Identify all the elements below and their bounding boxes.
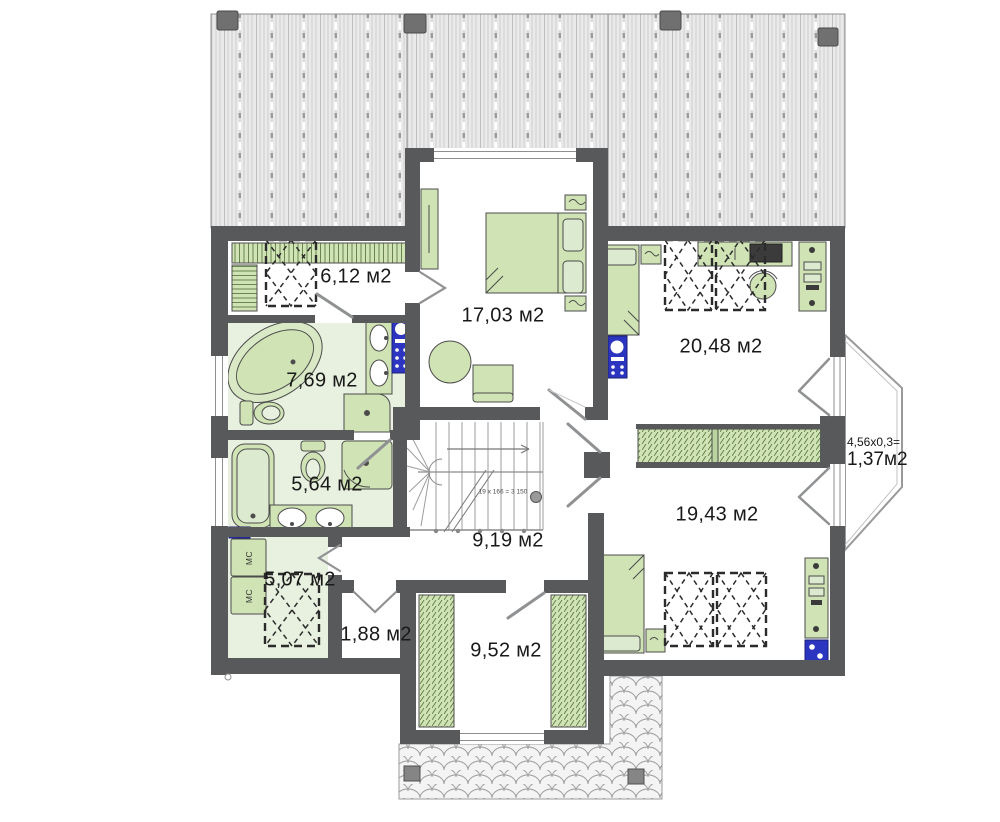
washer-label-1: МС xyxy=(244,551,254,565)
shower-corner-main xyxy=(344,394,390,432)
wardrobe-right xyxy=(551,595,586,727)
round-table xyxy=(429,341,471,383)
balcony-door-lower xyxy=(830,464,845,526)
shelf-1943 xyxy=(805,558,828,638)
partition-wardrobe-1 xyxy=(638,429,712,463)
room-label-closet-top: 6,12 м2 xyxy=(320,266,391,289)
window-left-lower xyxy=(211,458,228,526)
room-label-closet-small: 1,88 м2 xyxy=(340,624,411,647)
window-left-upper xyxy=(211,356,228,416)
partition-divider xyxy=(712,429,718,463)
nightstand-1943 xyxy=(646,629,665,652)
balcony-door-upper xyxy=(830,357,845,416)
roof-vent xyxy=(660,11,681,30)
double-bed xyxy=(486,213,586,293)
room-label-bedroom-main: 17,03 м2 xyxy=(462,305,545,328)
porch-vent xyxy=(628,769,644,784)
toilet-main xyxy=(240,401,284,425)
roof-vent xyxy=(404,14,426,33)
nightstand-2048 xyxy=(641,245,661,264)
floor-plan-drawing xyxy=(0,0,1000,822)
nightstand-top xyxy=(565,195,586,210)
room-label-bedroom-right-bottom: 19,43 м2 xyxy=(676,504,759,527)
floor-plan: 6,12 м2 17,03 м2 20,48 м2 7,69 м2 5,64 м… xyxy=(0,0,1000,822)
roof-vent xyxy=(818,28,838,46)
window-wardrobe-room xyxy=(460,730,544,744)
chair xyxy=(473,365,513,402)
wall-detail xyxy=(225,674,231,680)
balcony-label: 4,56x0,3= 1,37м2 xyxy=(847,436,908,470)
nightstand-bottom xyxy=(565,296,586,311)
washer-label-2: МС xyxy=(244,589,254,603)
stair-dimension-note: 19 x 166 = 3 150 xyxy=(479,489,528,496)
window-dormer-top xyxy=(434,148,576,162)
single-bed-bottom xyxy=(599,555,644,653)
room-label-bedroom-right-top: 20,48 м2 xyxy=(680,336,763,359)
vanity-double-main xyxy=(366,318,392,394)
room-label-laundry: 5,07 м2 xyxy=(264,569,335,592)
porch-vent xyxy=(404,766,420,781)
room-label-bathroom-second: 5,64 м2 xyxy=(291,474,362,497)
bathtub-straight xyxy=(232,444,274,528)
roof-vent xyxy=(217,11,238,30)
washbasin-2048-blue xyxy=(608,336,627,378)
partition-wardrobe-2 xyxy=(718,429,822,463)
balcony-dimensions: 4,56x0,3= xyxy=(847,436,908,449)
shelf-2048 xyxy=(799,242,826,311)
wardrobe-left xyxy=(419,595,454,727)
room-label-wardrobe-room: 9,52 м2 xyxy=(470,640,541,663)
room-label-stair-hall: 9,19 м2 xyxy=(472,530,543,553)
room-label-bathroom-main: 7,69 м2 xyxy=(286,370,357,393)
balcony-area: 1,37м2 xyxy=(847,449,908,470)
